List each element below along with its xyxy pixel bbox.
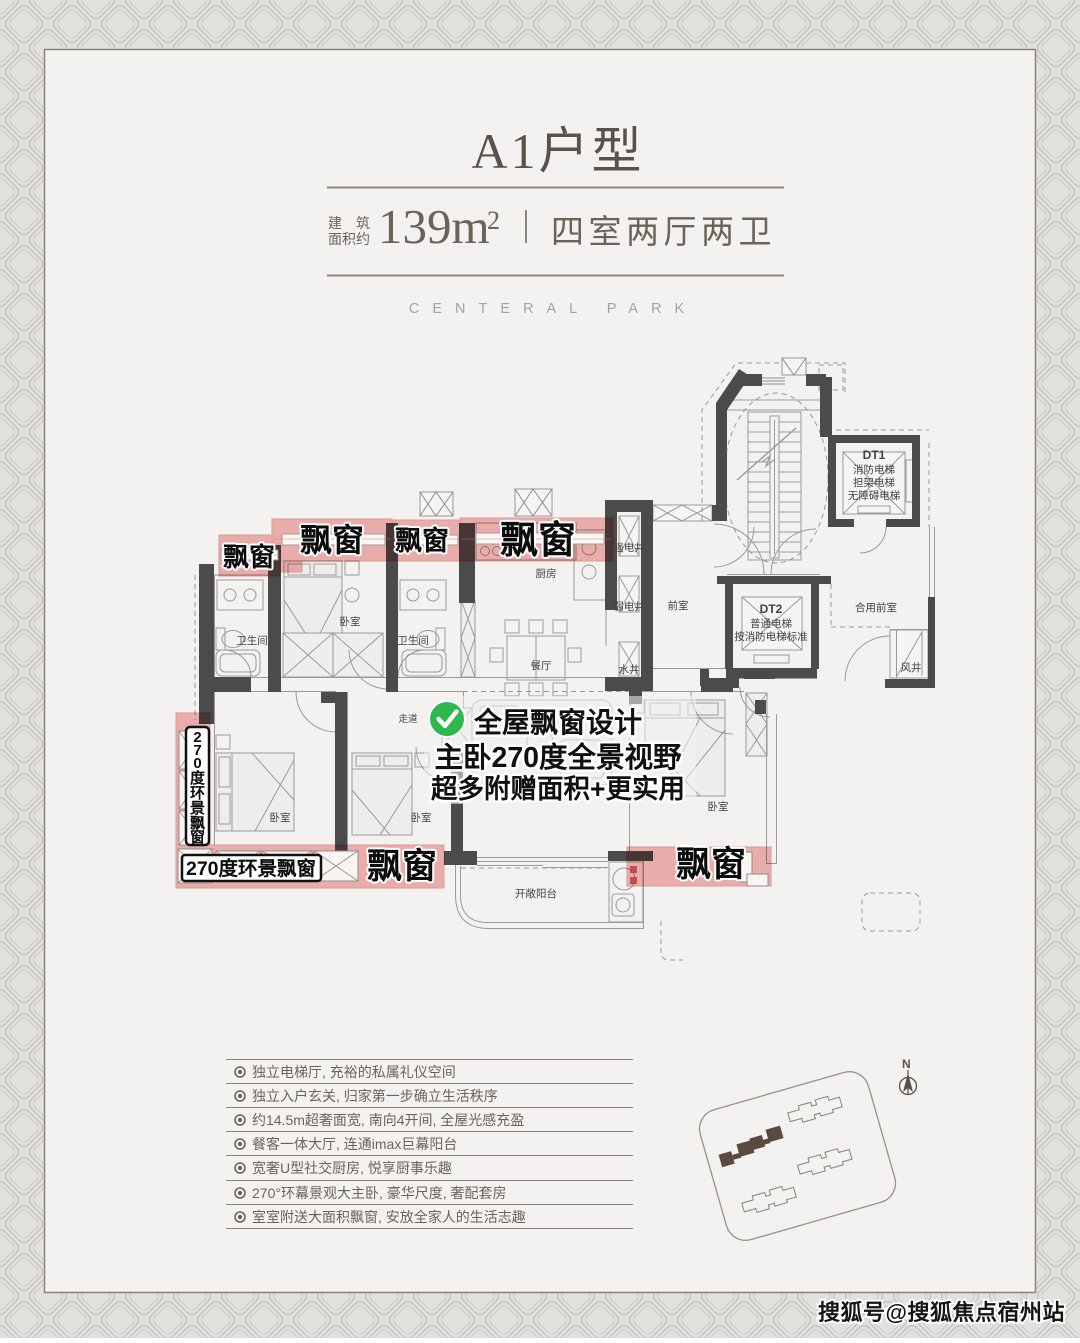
svg-text:风井: 风井: [901, 661, 922, 674]
svg-text:270°环幕景观大主卧, 豪华尺度, 奢配套房: 270°环幕景观大主卧, 豪华尺度, 奢配套房: [252, 1185, 507, 1201]
svg-text:弱电井: 弱电井: [613, 600, 645, 613]
svg-text:开敞阳台: 开敞阳台: [515, 887, 557, 900]
svg-text:按消防电梯标准: 按消防电梯标准: [734, 630, 808, 643]
svg-text:飘窗: 飘窗: [300, 522, 364, 558]
svg-text:前室: 前室: [668, 599, 689, 612]
svg-text:A1户型: A1户型: [471, 123, 644, 179]
svg-text:飘窗: 飘窗: [500, 520, 576, 562]
svg-text:全屋飘窗设计: 全屋飘窗设计: [473, 706, 642, 738]
svg-text:四室两厅两卫: 四室两厅两卫: [551, 214, 776, 251]
svg-text:DT2: DT2: [760, 602, 783, 616]
svg-text:卫生间: 卫生间: [236, 634, 268, 647]
svg-text:CENTERAL PARK: CENTERAL PARK: [409, 301, 697, 317]
svg-text:卧室: 卧室: [340, 615, 361, 628]
svg-text:强电井: 强电井: [613, 541, 645, 554]
svg-text:139m: 139m: [378, 199, 490, 254]
svg-text:270度环景飘窗: 270度环景飘窗: [186, 857, 316, 880]
svg-text:独立入户玄关, 归家第一步确立生活秩序: 独立入户玄关, 归家第一步确立生活秩序: [252, 1088, 498, 1104]
svg-text:消防电梯: 消防电梯: [853, 463, 895, 476]
svg-text:宽奢U型社交厨房, 悦享厨事乐趣: 宽奢U型社交厨房, 悦享厨事乐趣: [252, 1160, 452, 1176]
svg-text:卧室: 卧室: [708, 800, 729, 813]
svg-text:室室附送大面积飘窗, 安放全家人的生活志趣: 室室附送大面积飘窗, 安放全家人的生活志趣: [252, 1209, 526, 1225]
svg-text:超多附赠面积+更实用: 超多附赠面积+更实用: [431, 774, 685, 804]
svg-text:主卧270度全景视野: 主卧270度全景视野: [434, 741, 682, 774]
svg-text:厨房: 厨房: [536, 567, 557, 580]
svg-text:餐客一体大厅, 连通imax巨幕阳台: 餐客一体大厅, 连通imax巨幕阳台: [252, 1136, 457, 1152]
svg-text:面积约: 面积约: [328, 232, 370, 248]
svg-text:卧室: 卧室: [411, 811, 432, 824]
svg-text:约14.5m超奢面宽, 南向4开间, 全屋光感充盈: 约14.5m超奢面宽, 南向4开间, 全屋光感充盈: [252, 1112, 524, 1128]
svg-text:无障碍电梯: 无障碍电梯: [848, 489, 901, 502]
svg-text:卧室: 卧室: [270, 811, 291, 824]
svg-text:独立电梯厅, 充裕的私属礼仪空间: 独立电梯厅, 充裕的私属礼仪空间: [252, 1064, 456, 1080]
svg-text:卫生间: 卫生间: [397, 634, 429, 647]
svg-text:飘窗: 飘窗: [223, 542, 275, 572]
svg-text:担架电梯: 担架电梯: [853, 476, 895, 489]
svg-text:餐厅: 餐厅: [531, 659, 552, 672]
svg-text:窗: 窗: [190, 828, 205, 846]
svg-text:N: N: [902, 1057, 911, 1071]
svg-text:飘窗: 飘窗: [676, 845, 746, 884]
svg-text:DT1: DT1: [863, 448, 886, 462]
svg-text:水井: 水井: [619, 663, 640, 676]
svg-text:普通电梯: 普通电梯: [750, 617, 792, 630]
svg-text:走道: 走道: [398, 713, 418, 725]
svg-text:建 筑: 建 筑: [328, 216, 370, 232]
svg-text:飘窗: 飘窗: [367, 847, 437, 886]
svg-text:2: 2: [487, 206, 500, 235]
svg-text:搜狐号@搜狐焦点宿州站: 搜狐号@搜狐焦点宿州站: [818, 1300, 1065, 1325]
svg-text:合用前室: 合用前室: [855, 601, 897, 614]
svg-text:飘窗: 飘窗: [395, 525, 449, 556]
